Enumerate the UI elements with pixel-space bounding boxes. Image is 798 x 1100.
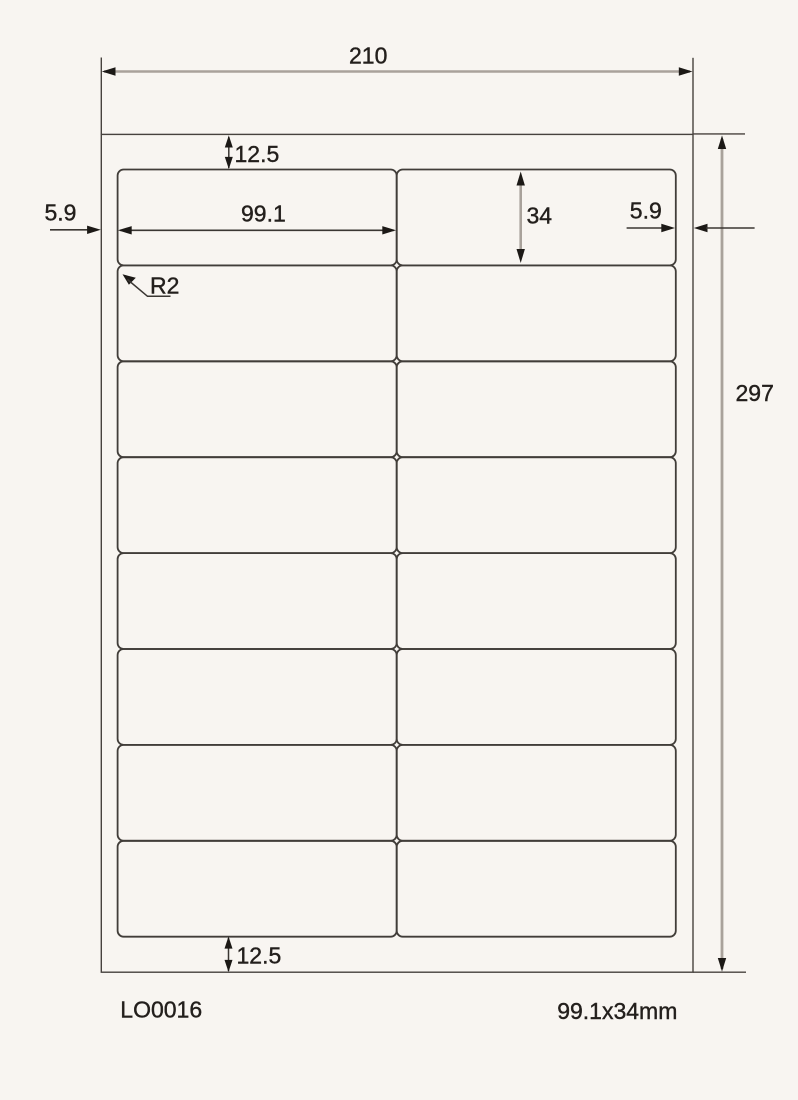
svg-text:R2: R2: [150, 273, 179, 299]
svg-text:34: 34: [527, 203, 553, 229]
svg-text:5.9: 5.9: [45, 200, 77, 226]
svg-text:99.1x34mm: 99.1x34mm: [557, 998, 677, 1024]
svg-text:12.5: 12.5: [235, 141, 280, 167]
svg-text:99.1: 99.1: [241, 201, 286, 227]
svg-text:297: 297: [736, 380, 774, 406]
svg-text:210: 210: [349, 43, 387, 69]
svg-text:LO0016: LO0016: [120, 997, 202, 1023]
svg-text:5.9: 5.9: [630, 198, 662, 224]
svg-text:12.5: 12.5: [237, 943, 282, 969]
